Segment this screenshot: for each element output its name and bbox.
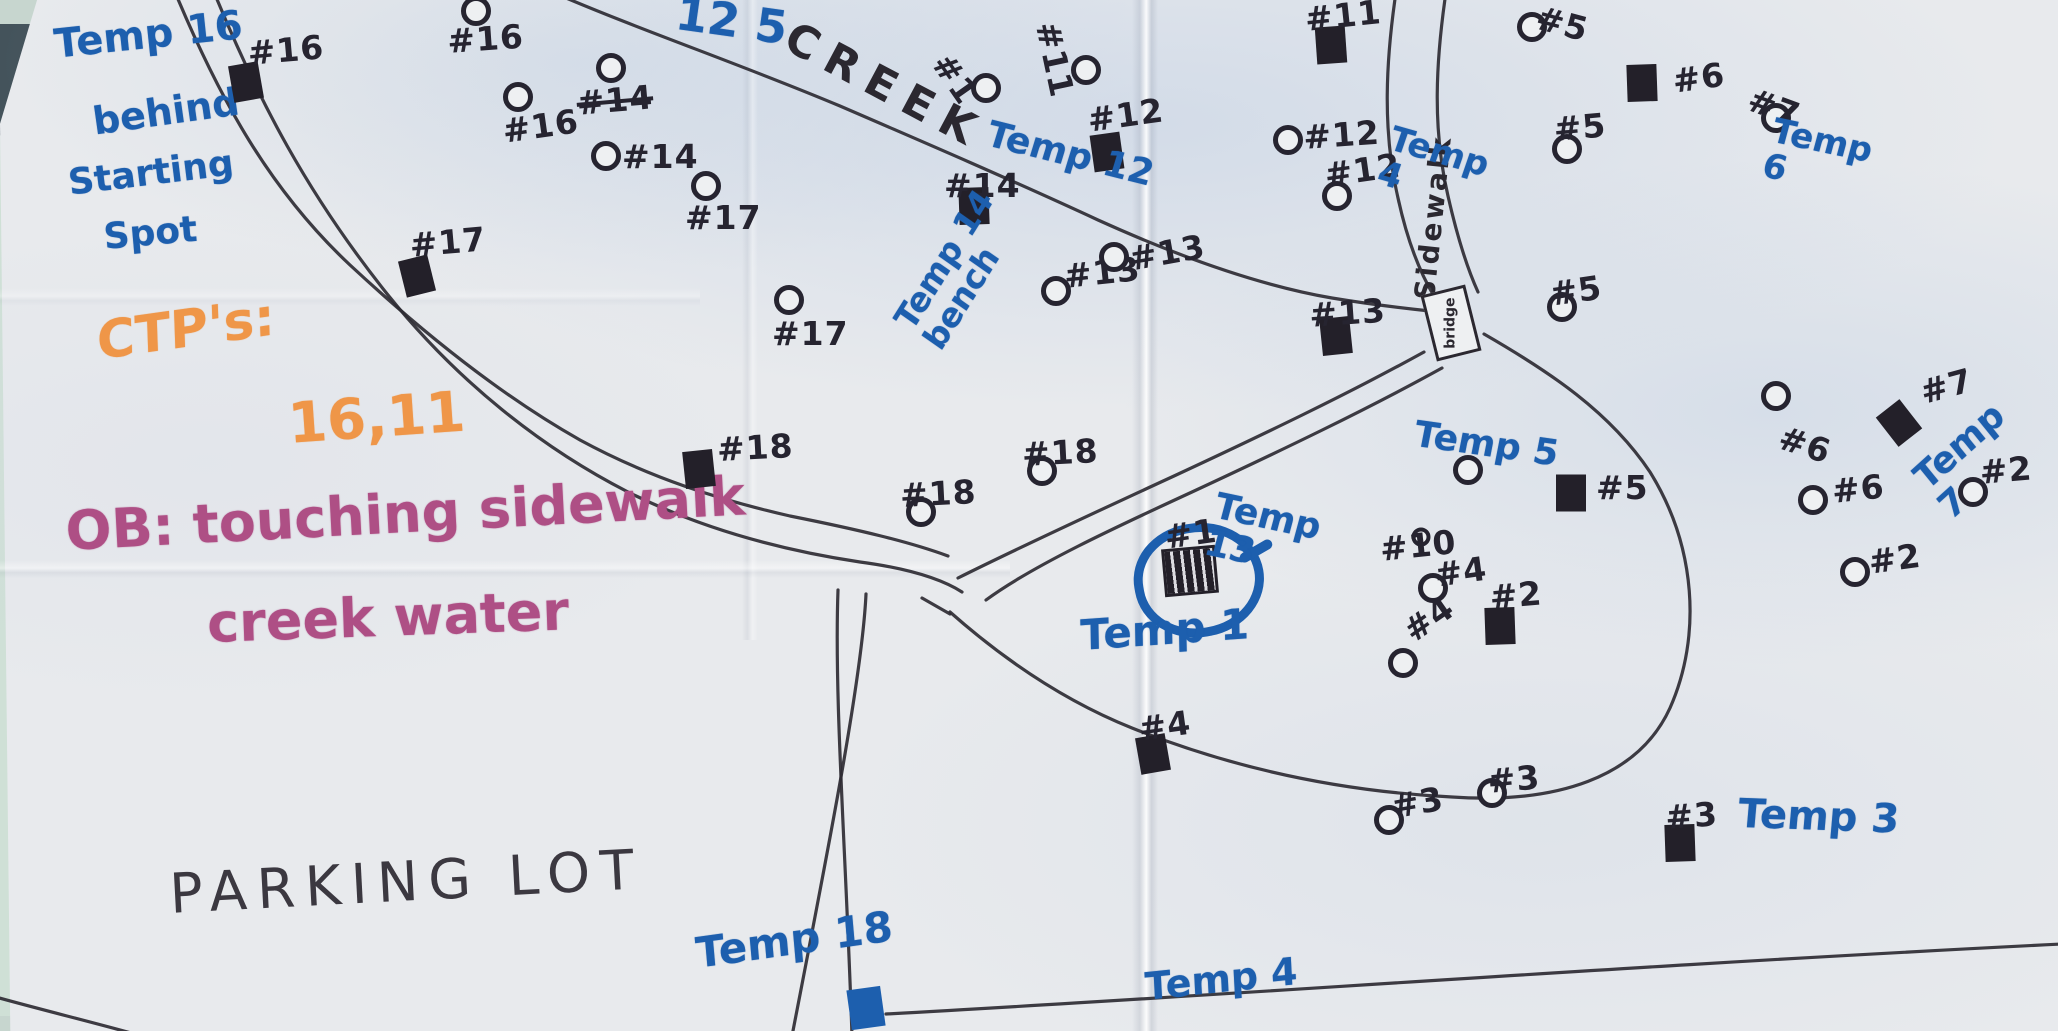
hole-label-14: #14 bbox=[575, 77, 655, 123]
basket-12-marker bbox=[1273, 125, 1303, 155]
note-temp16-line4: Spot bbox=[102, 209, 199, 258]
basket-6-marker bbox=[1798, 485, 1828, 515]
basket-14-marker bbox=[591, 141, 621, 171]
basket-13-marker bbox=[1099, 242, 1129, 272]
hole-label-4: #4 bbox=[1136, 703, 1194, 749]
hole-label-5: #5 bbox=[1596, 468, 1649, 507]
corner-stroke bbox=[0, 996, 142, 1031]
hole-label-17: #17 bbox=[408, 219, 488, 265]
temp-label-temp-1: Temp 1 bbox=[1080, 602, 1250, 658]
hole-label-5: #5 bbox=[1552, 105, 1608, 148]
hole-label-2: #2 bbox=[1866, 536, 1924, 582]
hole-label-16: #16 bbox=[246, 27, 326, 73]
temp-label-temp-3: Temp 3 bbox=[1736, 793, 1901, 841]
hole-label-18: #18 bbox=[899, 472, 978, 515]
basket-2-marker bbox=[1840, 557, 1870, 587]
hole-label-2: #2 bbox=[1488, 573, 1544, 616]
hole-label-6: #6 bbox=[1670, 55, 1728, 101]
tee-pad-x-marker bbox=[846, 986, 885, 1030]
basket-4-marker bbox=[1388, 648, 1418, 678]
tee-pad-5-marker bbox=[1556, 475, 1586, 512]
note-ob-line2: creek water bbox=[206, 579, 570, 655]
tee-pad-6-marker bbox=[1626, 64, 1657, 102]
creek-lower-sweep bbox=[950, 334, 1690, 798]
hole-label-17: #17 bbox=[685, 198, 762, 237]
hole-label-4: #4 bbox=[1432, 549, 1490, 595]
hole-label-6: #6 bbox=[1830, 466, 1886, 510]
hole-label-18: #18 bbox=[716, 426, 795, 469]
basket-6-marker bbox=[1761, 381, 1791, 411]
path-to-parking-2 bbox=[792, 594, 866, 1031]
hole-label-17: #17 bbox=[772, 314, 849, 353]
note-ctp-values: 16,11 bbox=[286, 380, 467, 457]
map-photo: Temp 16 behind Starting Spot CTP's: 16,1… bbox=[0, 0, 2058, 1031]
junction-tick bbox=[922, 598, 950, 614]
tee-pad-18-marker bbox=[682, 449, 716, 489]
hole-label-14: #14 bbox=[622, 137, 699, 176]
hole-label-3: #3 bbox=[1664, 794, 1719, 837]
path-to-parking-1 bbox=[837, 590, 852, 1031]
hole-label-18: #18 bbox=[1021, 431, 1100, 474]
bottom-boundary bbox=[886, 944, 2058, 1014]
bridge-label: bridge bbox=[1443, 297, 1459, 348]
hole-label-3: #3 bbox=[1486, 757, 1542, 800]
hole-label-5: #5 bbox=[1547, 268, 1605, 314]
basket-14-marker bbox=[596, 53, 626, 83]
hole-label-13: #13 bbox=[1308, 291, 1387, 335]
hole-label-16: #16 bbox=[446, 17, 525, 61]
basket-17-marker bbox=[691, 171, 721, 201]
basket-17-marker bbox=[774, 285, 804, 315]
